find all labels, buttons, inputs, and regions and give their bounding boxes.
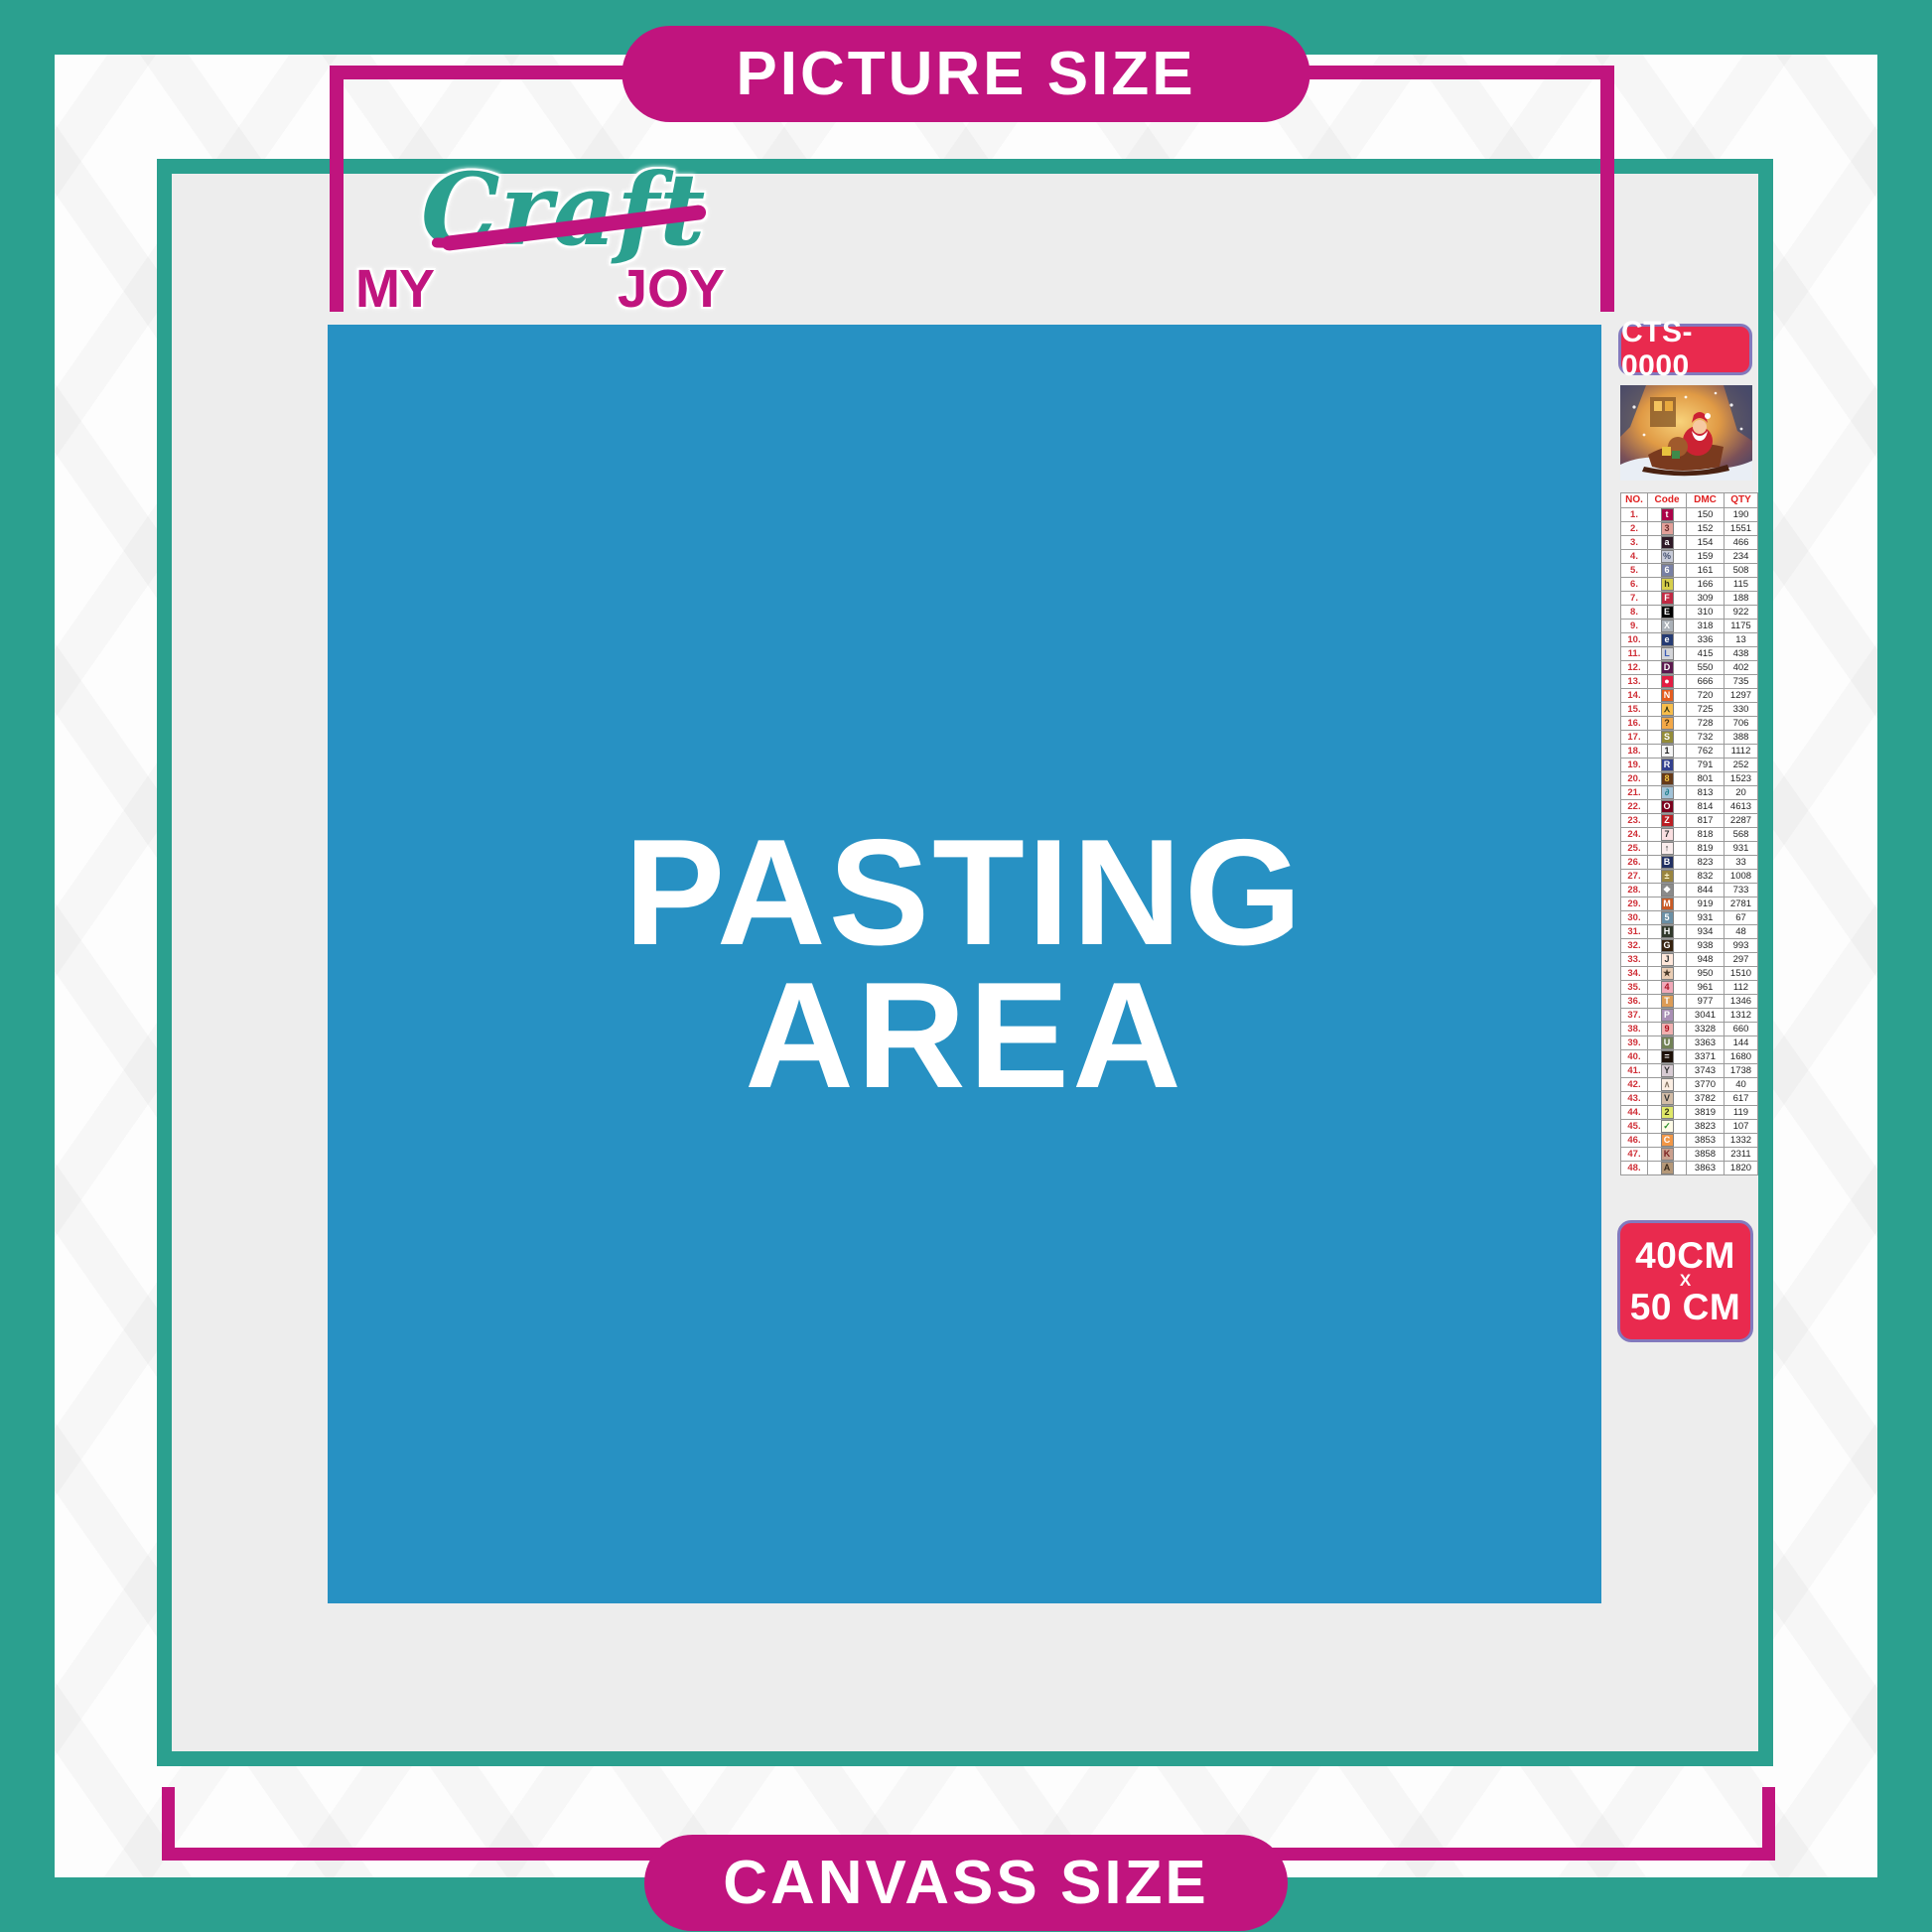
legend-row-code: = [1648, 1050, 1687, 1064]
legend-row-code: B [1648, 856, 1687, 870]
legend-row-qty: 1008 [1725, 870, 1758, 884]
legend-row-dmc: 818 [1687, 828, 1725, 842]
legend-row-number: 15. [1621, 703, 1648, 717]
legend-row-qty: 706 [1725, 717, 1758, 731]
legend-row-dmc: 3863 [1687, 1162, 1725, 1175]
legend-row-dmc: 817 [1687, 814, 1725, 828]
legend-row: 2. 3 152 1551 [1621, 522, 1758, 536]
color-symbol-swatch: ± [1661, 870, 1674, 883]
legend-row: 32. G 938 993 [1621, 939, 1758, 953]
legend-row-number: 6. [1621, 578, 1648, 592]
legend-row-qty: 67 [1725, 911, 1758, 925]
legend-row-number: 39. [1621, 1036, 1648, 1050]
legend-header-row: NO. Code DMC QTY [1621, 493, 1758, 508]
legend-row-qty: 144 [1725, 1036, 1758, 1050]
legend-header-qty: QTY [1725, 493, 1758, 508]
color-symbol-swatch: L [1661, 647, 1674, 660]
legend-row: 45. ✓ 3823 107 [1621, 1120, 1758, 1134]
legend-row-code: Z [1648, 814, 1687, 828]
legend-row-dmc: 938 [1687, 939, 1725, 953]
legend-row: 12. D 550 402 [1621, 661, 1758, 675]
legend-row-number: 17. [1621, 731, 1648, 745]
legend-row-code: % [1648, 550, 1687, 564]
color-symbol-swatch: F [1661, 592, 1674, 605]
legend-row-dmc: 720 [1687, 689, 1725, 703]
legend-row-number: 34. [1621, 967, 1648, 981]
legend-row-code: T [1648, 995, 1687, 1009]
legend-row-qty: 733 [1725, 884, 1758, 897]
legend-row-number: 38. [1621, 1023, 1648, 1036]
brand-logo: Craft MY JOY [349, 167, 727, 324]
legend-row-qty: 1820 [1725, 1162, 1758, 1175]
legend-row-code: K [1648, 1148, 1687, 1162]
legend-row-qty: 252 [1725, 759, 1758, 772]
legend-row-number: 23. [1621, 814, 1648, 828]
legend-row-qty: 1312 [1725, 1009, 1758, 1023]
legend-row-qty: 1738 [1725, 1064, 1758, 1078]
santa-sleigh-illustration [1620, 385, 1752, 481]
legend-row-qty: 568 [1725, 828, 1758, 842]
legend-row-number: 8. [1621, 606, 1648, 620]
legend-row-dmc: 948 [1687, 953, 1725, 967]
legend-row: 15. ⋏ 725 330 [1621, 703, 1758, 717]
color-symbol-swatch: ⋏ [1661, 703, 1674, 716]
legend-row-number: 27. [1621, 870, 1648, 884]
legend-row-code: N [1648, 689, 1687, 703]
legend-row: 30. 5 931 67 [1621, 911, 1758, 925]
legend-row-dmc: 814 [1687, 800, 1725, 814]
legend-row-code: H [1648, 925, 1687, 939]
legend-row-number: 20. [1621, 772, 1648, 786]
legend-header-dmc: DMC [1687, 493, 1725, 508]
poster: PASTING AREA PICTURE SIZE CANVASS SIZE C… [0, 0, 1932, 1932]
color-symbol-swatch: N [1661, 689, 1674, 702]
legend-row: 42. ∧ 3770 40 [1621, 1078, 1758, 1092]
legend-row-dmc: 3371 [1687, 1050, 1725, 1064]
color-symbol-swatch: D [1661, 661, 1674, 674]
legend-row-code: C [1648, 1134, 1687, 1148]
legend-row: 4. % 159 234 [1621, 550, 1758, 564]
legend-row-qty: 20 [1725, 786, 1758, 800]
legend-row-code: ∧ [1648, 1078, 1687, 1092]
color-symbol-swatch: h [1661, 578, 1674, 591]
color-symbol-swatch: P [1661, 1009, 1674, 1022]
canvass-size-bracket-right [1762, 1787, 1775, 1861]
sku-badge: CTS-0000 [1618, 324, 1752, 375]
legend-row-dmc: 819 [1687, 842, 1725, 856]
color-symbol-swatch: ✓ [1661, 1120, 1674, 1133]
legend-row-code: L [1648, 647, 1687, 661]
legend-row-qty: 1297 [1725, 689, 1758, 703]
legend-row-qty: 297 [1725, 953, 1758, 967]
legend-row-code: U [1648, 1036, 1687, 1050]
color-symbol-swatch: B [1661, 856, 1674, 869]
pasting-area-line1: PASTING [624, 821, 1305, 964]
legend-row-number: 35. [1621, 981, 1648, 995]
legend-row-number: 26. [1621, 856, 1648, 870]
legend-row-code: 8 [1648, 772, 1687, 786]
brand-logo-my: MY [355, 258, 434, 320]
legend-row: 46. C 3853 1332 [1621, 1134, 1758, 1148]
legend-row-number: 46. [1621, 1134, 1648, 1148]
legend-row: 23. Z 817 2287 [1621, 814, 1758, 828]
legend-row: 8. E 310 922 [1621, 606, 1758, 620]
legend-row-number: 28. [1621, 884, 1648, 897]
legend-row-number: 1. [1621, 508, 1648, 522]
legend-row-code: ± [1648, 870, 1687, 884]
pasting-area-line2: AREA [745, 964, 1184, 1107]
legend-row-number: 24. [1621, 828, 1648, 842]
legend-row-dmc: 310 [1687, 606, 1725, 620]
legend-row-dmc: 961 [1687, 981, 1725, 995]
legend-row-number: 29. [1621, 897, 1648, 911]
legend-row: 25. ↑ 819 931 [1621, 842, 1758, 856]
legend-row: 44. 2 3819 119 [1621, 1106, 1758, 1120]
color-symbol-swatch: a [1661, 536, 1674, 549]
legend-row-number: 7. [1621, 592, 1648, 606]
legend-row: 31. H 934 48 [1621, 925, 1758, 939]
legend-row-dmc: 801 [1687, 772, 1725, 786]
legend-row-dmc: 161 [1687, 564, 1725, 578]
canvas-size-line1: 40CM [1635, 1238, 1735, 1273]
legend-row-number: 36. [1621, 995, 1648, 1009]
legend-row: 16. ? 728 706 [1621, 717, 1758, 731]
legend-row-qty: 1510 [1725, 967, 1758, 981]
legend-row-qty: 922 [1725, 606, 1758, 620]
legend-row: 35. 4 961 112 [1621, 981, 1758, 995]
legend-row-dmc: 3743 [1687, 1064, 1725, 1078]
legend-row-code: F [1648, 592, 1687, 606]
legend-row-qty: 13 [1725, 633, 1758, 647]
color-symbol-swatch: ● [1661, 675, 1674, 688]
legend-row-qty: 402 [1725, 661, 1758, 675]
canvas-size-badge: 40CM X 50 CM [1617, 1220, 1753, 1342]
legend-row-qty: 2781 [1725, 897, 1758, 911]
legend-row: 40. = 3371 1680 [1621, 1050, 1758, 1064]
legend-row-code: 3 [1648, 522, 1687, 536]
color-symbol-swatch: U [1661, 1036, 1674, 1049]
legend-row-number: 48. [1621, 1162, 1648, 1175]
legend-row-qty: 107 [1725, 1120, 1758, 1134]
legend-row-dmc: 725 [1687, 703, 1725, 717]
legend-row: 38. 9 3328 660 [1621, 1023, 1758, 1036]
color-symbol-swatch: t [1661, 508, 1674, 521]
color-symbol-swatch: = [1661, 1050, 1674, 1063]
legend-row-number: 18. [1621, 745, 1648, 759]
legend-row-code: ? [1648, 717, 1687, 731]
legend-row-qty: 1551 [1725, 522, 1758, 536]
canvas-size-line3: 50 CM [1630, 1290, 1740, 1324]
legend-row: 29. M 919 2781 [1621, 897, 1758, 911]
picture-size-bracket-right [1600, 66, 1614, 312]
color-symbol-swatch: ★ [1661, 967, 1674, 980]
legend-row-dmc: 3858 [1687, 1148, 1725, 1162]
legend-row-qty: 735 [1725, 675, 1758, 689]
legend-row-number: 33. [1621, 953, 1648, 967]
legend-row: 7. F 309 188 [1621, 592, 1758, 606]
legend-row-qty: 40 [1725, 1078, 1758, 1092]
legend-row-qty: 4613 [1725, 800, 1758, 814]
legend-row-code: ★ [1648, 967, 1687, 981]
color-symbol-swatch: E [1661, 606, 1674, 619]
legend-row-qty: 1332 [1725, 1134, 1758, 1148]
legend-row-code: e [1648, 633, 1687, 647]
legend-row-dmc: 934 [1687, 925, 1725, 939]
legend-row: 20. 8 801 1523 [1621, 772, 1758, 786]
legend-row-dmc: 977 [1687, 995, 1725, 1009]
legend-row-code: A [1648, 1162, 1687, 1175]
color-symbol-swatch: ? [1661, 717, 1674, 730]
legend-row-dmc: 950 [1687, 967, 1725, 981]
legend-row-code: M [1648, 897, 1687, 911]
legend-row-code: 2 [1648, 1106, 1687, 1120]
legend-row-code: D [1648, 661, 1687, 675]
legend-row: 6. h 166 115 [1621, 578, 1758, 592]
legend-row-dmc: 823 [1687, 856, 1725, 870]
legend-row-qty: 330 [1725, 703, 1758, 717]
legend-row-qty: 234 [1725, 550, 1758, 564]
legend-row-code: 6 [1648, 564, 1687, 578]
color-symbol-swatch: A [1661, 1162, 1674, 1174]
color-legend-table: NO. Code DMC QTY 1. t 150 190 2. 3 152 1… [1620, 492, 1758, 1175]
legend-row: 27. ± 832 1008 [1621, 870, 1758, 884]
color-symbol-swatch: ∂ [1661, 786, 1674, 799]
legend-row-code: R [1648, 759, 1687, 772]
legend-row-dmc: 762 [1687, 745, 1725, 759]
legend-row-code: ● [1648, 675, 1687, 689]
legend-body: 1. t 150 190 2. 3 152 1551 3. a 154 466 … [1621, 508, 1758, 1175]
legend-row-qty: 466 [1725, 536, 1758, 550]
legend-row-number: 41. [1621, 1064, 1648, 1078]
legend-row: 34. ★ 950 1510 [1621, 967, 1758, 981]
color-symbol-swatch: C [1661, 1134, 1674, 1147]
legend-row-qty: 508 [1725, 564, 1758, 578]
legend-row: 21. ∂ 813 20 [1621, 786, 1758, 800]
legend-row-code: 9 [1648, 1023, 1687, 1036]
legend-row-dmc: 415 [1687, 647, 1725, 661]
legend-row: 43. V 3782 617 [1621, 1092, 1758, 1106]
legend-row-qty: 617 [1725, 1092, 1758, 1106]
legend-row-dmc: 931 [1687, 911, 1725, 925]
legend-row-code: V [1648, 1092, 1687, 1106]
legend-row-number: 22. [1621, 800, 1648, 814]
legend-row-number: 42. [1621, 1078, 1648, 1092]
legend-row-code: h [1648, 578, 1687, 592]
legend-row-number: 3. [1621, 536, 1648, 550]
legend-row: 48. A 3863 1820 [1621, 1162, 1758, 1175]
legend-row-code: 5 [1648, 911, 1687, 925]
legend-row-code: P [1648, 1009, 1687, 1023]
legend-row-dmc: 154 [1687, 536, 1725, 550]
color-symbol-swatch: e [1661, 633, 1674, 646]
legend-row-number: 47. [1621, 1148, 1648, 1162]
color-symbol-swatch: 7 [1661, 828, 1674, 841]
legend-row: 14. N 720 1297 [1621, 689, 1758, 703]
legend-row-qty: 438 [1725, 647, 1758, 661]
legend-row-number: 19. [1621, 759, 1648, 772]
legend-row-dmc: 3041 [1687, 1009, 1725, 1023]
legend-row-dmc: 666 [1687, 675, 1725, 689]
legend-row-qty: 119 [1725, 1106, 1758, 1120]
color-symbol-swatch: 8 [1661, 772, 1674, 785]
legend-row-qty: 660 [1725, 1023, 1758, 1036]
legend-row-dmc: 336 [1687, 633, 1725, 647]
legend-row-dmc: 318 [1687, 620, 1725, 633]
color-symbol-swatch: K [1661, 1148, 1674, 1161]
legend-row-dmc: 844 [1687, 884, 1725, 897]
legend-row-code: J [1648, 953, 1687, 967]
legend-row-code: E [1648, 606, 1687, 620]
legend-row-dmc: 3853 [1687, 1134, 1725, 1148]
color-symbol-swatch: S [1661, 731, 1674, 744]
legend-row-number: 31. [1621, 925, 1648, 939]
legend-row-number: 5. [1621, 564, 1648, 578]
legend-row-qty: 931 [1725, 842, 1758, 856]
color-symbol-swatch: ❖ [1661, 884, 1674, 897]
legend-row-dmc: 166 [1687, 578, 1725, 592]
legend-row-qty: 1346 [1725, 995, 1758, 1009]
canvass-size-bracket-left [162, 1787, 175, 1861]
legend-row-dmc: 3328 [1687, 1023, 1725, 1036]
legend-header-no: NO. [1621, 493, 1648, 508]
picture-size-bracket-left [330, 66, 344, 312]
color-symbol-swatch: V [1661, 1092, 1674, 1105]
legend-row-dmc: 150 [1687, 508, 1725, 522]
legend-row-number: 44. [1621, 1106, 1648, 1120]
legend-row-dmc: 732 [1687, 731, 1725, 745]
color-symbol-swatch: 1 [1661, 745, 1674, 758]
legend-row-code: a [1648, 536, 1687, 550]
color-symbol-swatch: T [1661, 995, 1674, 1008]
legend-row-dmc: 813 [1687, 786, 1725, 800]
legend-row-code: Y [1648, 1064, 1687, 1078]
legend-header-code: Code [1648, 493, 1687, 508]
legend-row-qty: 190 [1725, 508, 1758, 522]
legend-row-dmc: 728 [1687, 717, 1725, 731]
color-symbol-swatch: H [1661, 925, 1674, 938]
legend-row: 9. X 318 1175 [1621, 620, 1758, 633]
legend-row: 19. R 791 252 [1621, 759, 1758, 772]
legend-row-qty: 48 [1725, 925, 1758, 939]
legend-row-dmc: 550 [1687, 661, 1725, 675]
legend-row-dmc: 3770 [1687, 1078, 1725, 1092]
pasting-area: PASTING AREA [328, 325, 1601, 1603]
legend-row-code: ↑ [1648, 842, 1687, 856]
legend-row-qty: 2287 [1725, 814, 1758, 828]
legend-row-code: t [1648, 508, 1687, 522]
color-symbol-swatch: 4 [1661, 981, 1674, 994]
legend-row-number: 14. [1621, 689, 1648, 703]
color-symbol-swatch: Y [1661, 1064, 1674, 1077]
legend-row-code: 4 [1648, 981, 1687, 995]
legend-row: 39. U 3363 144 [1621, 1036, 1758, 1050]
legend-row: 22. O 814 4613 [1621, 800, 1758, 814]
color-symbol-swatch: 2 [1661, 1106, 1674, 1119]
color-symbol-swatch: M [1661, 897, 1674, 910]
legend-row-number: 37. [1621, 1009, 1648, 1023]
legend-row: 10. e 336 13 [1621, 633, 1758, 647]
legend-row: 36. T 977 1346 [1621, 995, 1758, 1009]
legend-row-qty: 388 [1725, 731, 1758, 745]
picture-size-pill: PICTURE SIZE [622, 26, 1311, 122]
color-symbol-swatch: 5 [1661, 911, 1674, 924]
brand-logo-joy: JOY [618, 258, 725, 320]
legend-row: 28. ❖ 844 733 [1621, 884, 1758, 897]
color-symbol-swatch: Z [1661, 814, 1674, 827]
legend-row: 1. t 150 190 [1621, 508, 1758, 522]
legend-row-number: 9. [1621, 620, 1648, 633]
legend-row-number: 25. [1621, 842, 1648, 856]
legend-row-qty: 33 [1725, 856, 1758, 870]
legend-row-qty: 112 [1725, 981, 1758, 995]
legend-row: 24. 7 818 568 [1621, 828, 1758, 842]
legend-row-qty: 188 [1725, 592, 1758, 606]
color-symbol-swatch: ∧ [1661, 1078, 1674, 1091]
design-preview-image [1620, 385, 1752, 481]
color-symbol-swatch: X [1661, 620, 1674, 632]
canvass-size-pill: CANVASS SIZE [644, 1835, 1288, 1931]
legend-row-number: 45. [1621, 1120, 1648, 1134]
legend-row-dmc: 309 [1687, 592, 1725, 606]
legend-row-number: 40. [1621, 1050, 1648, 1064]
legend-row-code: S [1648, 731, 1687, 745]
legend-row-number: 13. [1621, 675, 1648, 689]
color-symbol-swatch: ↑ [1661, 842, 1674, 855]
legend-row-dmc: 919 [1687, 897, 1725, 911]
legend-row-number: 2. [1621, 522, 1648, 536]
legend-row-code: ⋏ [1648, 703, 1687, 717]
legend-row-code: ✓ [1648, 1120, 1687, 1134]
color-symbol-swatch: 6 [1661, 564, 1674, 577]
legend-row: 33. J 948 297 [1621, 953, 1758, 967]
color-symbol-swatch: J [1661, 953, 1674, 966]
legend-row-dmc: 832 [1687, 870, 1725, 884]
legend-row: 37. P 3041 1312 [1621, 1009, 1758, 1023]
legend-row-code: ∂ [1648, 786, 1687, 800]
legend-row-qty: 993 [1725, 939, 1758, 953]
legend-row-qty: 1175 [1725, 620, 1758, 633]
legend-row-dmc: 3823 [1687, 1120, 1725, 1134]
legend-row-dmc: 3363 [1687, 1036, 1725, 1050]
legend-row: 47. K 3858 2311 [1621, 1148, 1758, 1162]
legend-row-number: 11. [1621, 647, 1648, 661]
color-symbol-swatch: % [1661, 550, 1674, 563]
legend-row-qty: 1680 [1725, 1050, 1758, 1064]
color-symbol-swatch: R [1661, 759, 1674, 771]
color-symbol-swatch: G [1661, 939, 1674, 952]
legend-row-dmc: 791 [1687, 759, 1725, 772]
legend-row-dmc: 152 [1687, 522, 1725, 536]
legend-row-qty: 2311 [1725, 1148, 1758, 1162]
color-symbol-swatch: O [1661, 800, 1674, 813]
legend-row-number: 4. [1621, 550, 1648, 564]
legend-row-code: 1 [1648, 745, 1687, 759]
legend-row-dmc: 3782 [1687, 1092, 1725, 1106]
color-symbol-swatch: 3 [1661, 522, 1674, 535]
legend-row: 18. 1 762 1112 [1621, 745, 1758, 759]
legend-row-code: ❖ [1648, 884, 1687, 897]
legend-row: 13. ● 666 735 [1621, 675, 1758, 689]
legend-row-number: 21. [1621, 786, 1648, 800]
legend-row: 17. S 732 388 [1621, 731, 1758, 745]
legend-row: 3. a 154 466 [1621, 536, 1758, 550]
color-symbol-swatch: 9 [1661, 1023, 1674, 1035]
legend-row-code: 7 [1648, 828, 1687, 842]
legend-row: 5. 6 161 508 [1621, 564, 1758, 578]
legend-row-qty: 115 [1725, 578, 1758, 592]
legend-row-code: G [1648, 939, 1687, 953]
legend-row-number: 12. [1621, 661, 1648, 675]
